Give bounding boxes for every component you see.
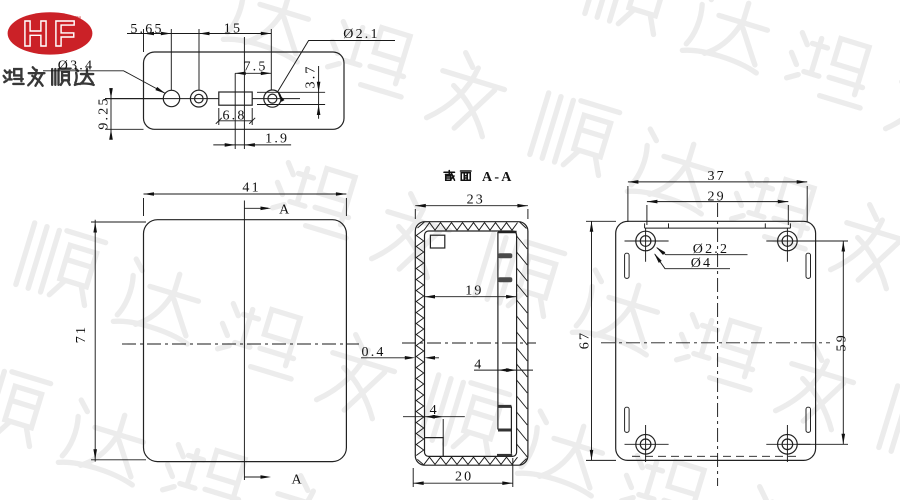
svg-text:7.5: 7.5 (243, 60, 267, 75)
svg-text:1.9: 1.9 (265, 132, 289, 147)
svg-text:Ø2.1: Ø2.1 (343, 27, 379, 42)
svg-text:9.25: 9.25 (97, 96, 112, 129)
svg-text:37: 37 (707, 169, 725, 184)
svg-text:4: 4 (430, 403, 439, 418)
svg-text:A: A (279, 203, 291, 218)
svg-text:29: 29 (707, 189, 725, 204)
svg-text:71: 71 (74, 325, 89, 343)
svg-text:A: A (292, 473, 304, 488)
svg-text:6.8: 6.8 (222, 109, 246, 124)
svg-text:67: 67 (578, 331, 593, 349)
svg-text:19: 19 (465, 284, 483, 299)
svg-text:HF: HF (23, 13, 81, 54)
svg-text:™: ™ (74, 16, 81, 23)
svg-text:41: 41 (242, 181, 260, 196)
svg-text:A-A: A-A (482, 170, 513, 185)
svg-text:59: 59 (835, 333, 850, 351)
svg-text:3.7: 3.7 (303, 64, 318, 88)
svg-text:5.65: 5.65 (130, 22, 163, 37)
svg-text:23: 23 (467, 193, 485, 208)
svg-text:15: 15 (224, 22, 242, 37)
svg-text:4: 4 (474, 358, 483, 373)
svg-text:20: 20 (455, 469, 473, 484)
